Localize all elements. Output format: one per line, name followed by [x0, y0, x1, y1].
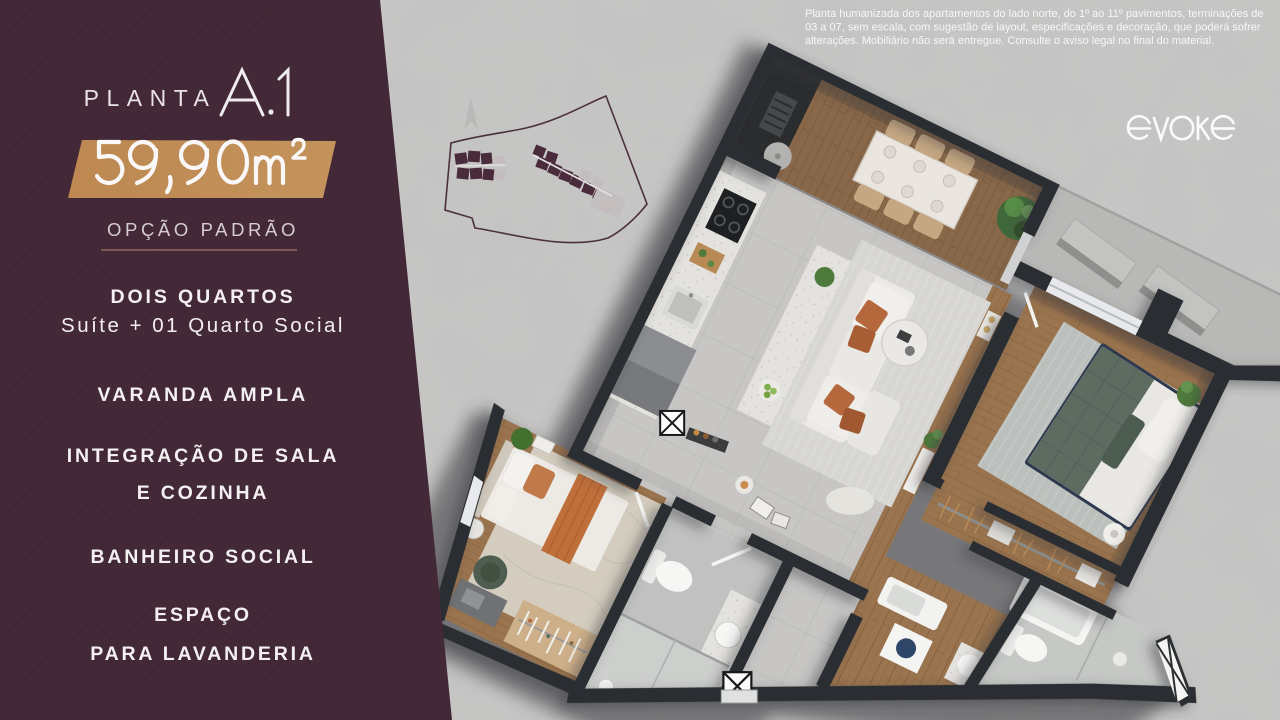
svg-text:OPÇÃO PADRÃO: OPÇÃO PADRÃO: [107, 219, 299, 240]
svg-text:03 a 07, sem escala, com suges: 03 a 07, sem escala, com sugestão de lay…: [805, 22, 1261, 34]
svg-text:alterações. Mobiliário não ser: alterações. Mobiliário não será entregue…: [805, 35, 1214, 47]
svg-text:E COZINHA: E COZINHA: [137, 482, 269, 504]
svg-text:VARANDA AMPLA: VARANDA AMPLA: [98, 384, 309, 406]
svg-text:Planta humanizada dos apartame: Planta humanizada dos apartamentos do la…: [805, 8, 1264, 20]
svg-text:PARA LAVANDERIA: PARA LAVANDERIA: [90, 643, 315, 665]
svg-text:PLANTA: PLANTA: [84, 85, 217, 111]
svg-text:BANHEIRO SOCIAL: BANHEIRO SOCIAL: [90, 546, 315, 568]
svg-text:ESPAÇO: ESPAÇO: [154, 604, 252, 626]
svg-text:Suíte + 01 Quarto Social: Suíte + 01 Quarto Social: [61, 314, 345, 337]
svg-text:INTEGRAÇÃO DE SALA: INTEGRAÇÃO DE SALA: [67, 444, 340, 467]
svg-text:DOIS QUARTOS: DOIS QUARTOS: [110, 286, 295, 308]
